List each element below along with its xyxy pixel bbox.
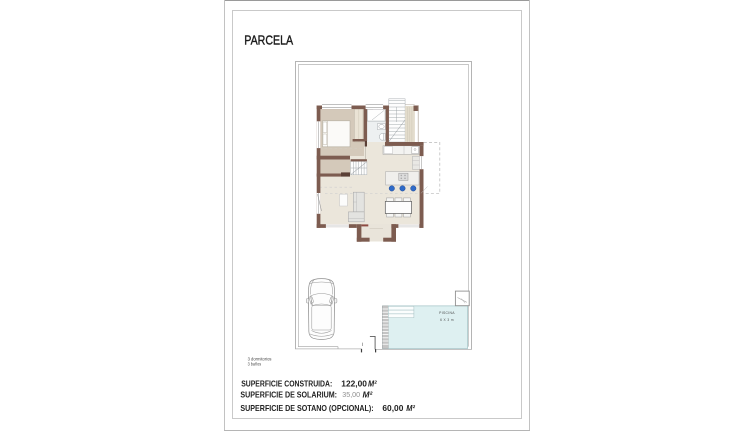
svg-text:M²: M² [363, 389, 373, 399]
svg-text:PARCELA: PARCELA [244, 33, 293, 48]
svg-text:35,00: 35,00 [342, 390, 360, 399]
svg-text:3 baños: 3 baños [248, 362, 262, 367]
svg-text:PISCINA: PISCINA [439, 311, 455, 315]
svg-text:SUPERFICIE DE SOLARIUM:: SUPERFICIE DE SOLARIUM: [240, 390, 337, 400]
svg-text:122,00: 122,00 [341, 379, 367, 389]
svg-text:60,00: 60,00 [382, 403, 403, 413]
svg-text:SUPERFICIE CONSTRUIDA:: SUPERFICIE CONSTRUIDA: [241, 379, 332, 389]
svg-text:6 X 3 m: 6 X 3 m [440, 318, 454, 322]
svg-text:M²: M² [368, 379, 377, 389]
svg-text:M²: M² [406, 403, 415, 413]
svg-text:SUPERFICIE DE SOTANO (OPCIONAL: SUPERFICIE DE SOTANO (OPCIONAL): [240, 404, 373, 414]
